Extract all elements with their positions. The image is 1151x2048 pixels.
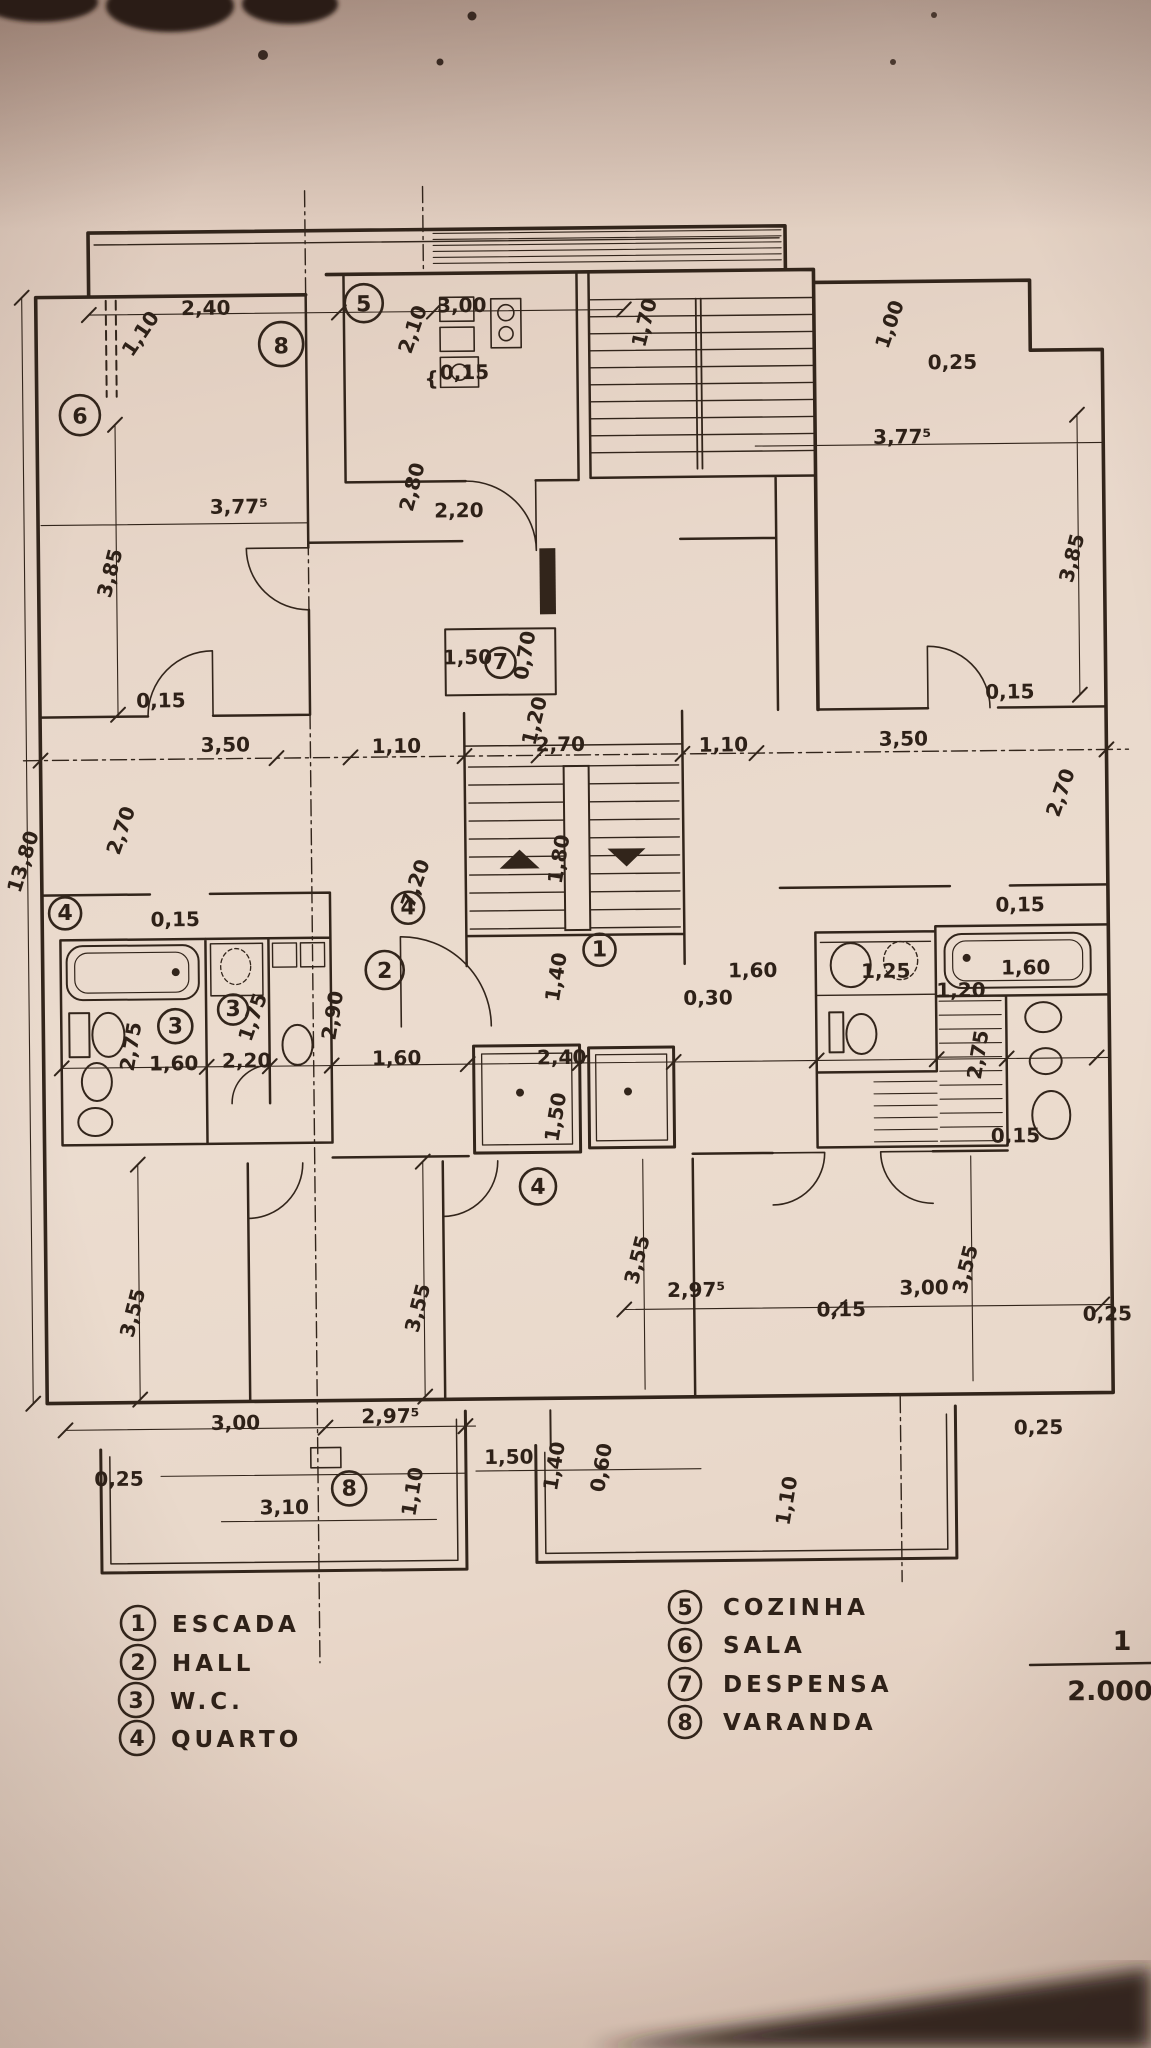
room-marker-number: 8 xyxy=(341,1476,357,1501)
legend-label-varanda: VARANDA xyxy=(723,1710,877,1736)
dimension-label: 3,77⁵ xyxy=(210,494,268,519)
dimension-label: 0,15 xyxy=(985,679,1035,704)
dimension-label: 1,60 xyxy=(728,958,778,983)
scale-denominator: 2.000 xyxy=(1067,1676,1151,1707)
dimension-label: 1,25 xyxy=(861,958,911,983)
legend-num-3: 3 xyxy=(128,1689,143,1714)
dimension-label: { xyxy=(424,366,439,390)
legend-num-6: 6 xyxy=(677,1634,692,1659)
dimension-label: 0,15 xyxy=(995,892,1045,917)
room-marker-number: 3 xyxy=(225,997,241,1022)
dimension-label: 3,50 xyxy=(201,732,251,757)
dimension-label: 3,77⁵ xyxy=(873,424,931,449)
dimension-label: 2,40 xyxy=(537,1045,587,1070)
room-marker-number: 7 xyxy=(493,650,509,675)
dimension-label: 1,10 xyxy=(372,734,422,759)
dimension-label: 3,00 xyxy=(437,293,487,318)
dimension-label: 3,00 xyxy=(899,1275,949,1300)
legend-num-5: 5 xyxy=(677,1596,692,1621)
dimension-label: 2,20 xyxy=(222,1048,272,1073)
room-marker-number: 1 xyxy=(592,937,608,962)
dimension-label: 1,20 xyxy=(936,978,986,1003)
dimension-label: 1,10 xyxy=(699,732,749,757)
room-marker-number: 8 xyxy=(273,334,289,359)
dimension-label: 0,25 xyxy=(1083,1301,1133,1326)
dimension-label: 0,25 xyxy=(928,350,978,375)
legend-label-wc: W.C. xyxy=(170,1689,244,1715)
dimension-label: 0,25 xyxy=(1014,1415,1064,1440)
photo-mark xyxy=(437,59,444,66)
legend-item-wc: 3 W.C. xyxy=(119,1683,244,1717)
dimension-label: 3,10 xyxy=(260,1495,310,1520)
legend-label-sala: SALA xyxy=(723,1633,806,1659)
dimension-label: 2,97⁵ xyxy=(667,1277,725,1302)
room-marker-number: 6 xyxy=(72,404,88,429)
dimension-label: 0,15 xyxy=(440,360,490,385)
legend-item-hall: 2 HALL xyxy=(121,1645,254,1679)
legend-item-sala: 6 SALA xyxy=(669,1629,806,1661)
legend-label-quarto: QUARTO xyxy=(171,1727,302,1753)
legend-label-hall: HALL xyxy=(172,1651,254,1677)
floor-plan-photo: 2,401,103,002,101,701,000,25{0,152,802,2… xyxy=(0,0,1151,2048)
dimension-label: 2,97⁵ xyxy=(361,1404,419,1429)
legend-num-8: 8 xyxy=(677,1711,692,1736)
dimension-label: 0,15 xyxy=(150,907,200,932)
dimension-label: 2,20 xyxy=(434,498,484,523)
room-marker-number: 4 xyxy=(530,1175,546,1200)
wall-poche xyxy=(539,548,556,614)
room-marker-number: 3 xyxy=(168,1014,184,1039)
dimension-label: 0,25 xyxy=(94,1467,144,1492)
photo-mark xyxy=(258,50,268,60)
scale-numerator: 1 xyxy=(1113,1626,1132,1657)
room-marker-number: 5 xyxy=(356,292,372,317)
dimension-label: 3,00 xyxy=(211,1410,261,1435)
dimension-label: 0,15 xyxy=(816,1297,866,1322)
legend-num-4: 4 xyxy=(129,1727,144,1752)
legend-label-cozinha: COZINHA xyxy=(723,1595,869,1621)
photo-mark xyxy=(890,59,896,65)
legend-label-despensa: DESPENSA xyxy=(723,1672,893,1698)
dimension-label: 0,15 xyxy=(136,688,186,713)
dimension-label: 2,70 xyxy=(536,732,586,757)
photo-mark xyxy=(468,12,477,21)
dimension-label: 0,30 xyxy=(683,985,733,1010)
room-marker-number: 4 xyxy=(57,901,73,926)
dimension-label: 1,60 xyxy=(372,1046,422,1071)
dimension-label: 3,50 xyxy=(879,726,929,751)
photo-mark xyxy=(931,12,937,18)
legend-num-2: 2 xyxy=(130,1651,145,1676)
legend-num-1: 1 xyxy=(130,1612,145,1637)
dimension-label: 1,60 xyxy=(149,1051,199,1076)
legend-num-7: 7 xyxy=(677,1673,692,1698)
legend-label-escada: ESCADA xyxy=(172,1612,300,1638)
dimension-label: 0,15 xyxy=(991,1123,1041,1148)
dimension-label: 1,50 xyxy=(484,1444,534,1469)
room-marker-number: 4 xyxy=(400,895,416,920)
dimension-label: 1,60 xyxy=(1001,955,1051,980)
room-marker-number: 2 xyxy=(377,959,393,984)
dimension-label: 2,40 xyxy=(181,296,231,321)
